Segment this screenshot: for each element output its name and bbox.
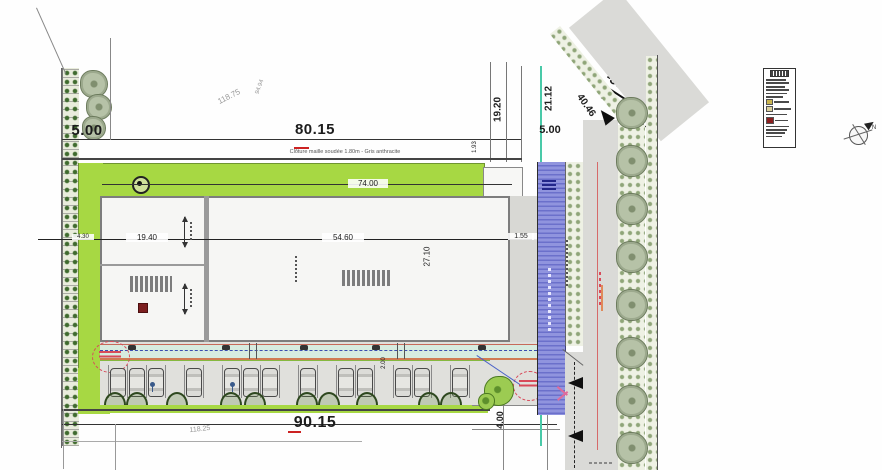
hedge-label-rotated — [566, 240, 568, 286]
legend-row — [766, 126, 793, 128]
legend-row — [766, 114, 793, 116]
tree-icon — [478, 393, 495, 410]
legend-row — [766, 86, 793, 88]
dim-parcel-diag-2: 94.94 — [251, 69, 269, 105]
parking-stall-line — [336, 365, 337, 398]
dim-hall-width: 54.60 — [322, 233, 364, 242]
red-mark — [288, 431, 301, 433]
note-circle-text — [519, 380, 538, 389]
road-orange-tick — [601, 285, 603, 311]
parking-stall-line — [355, 365, 356, 398]
legend-text-bar — [766, 79, 786, 81]
hall-note-rotated — [295, 256, 297, 284]
path-tick — [404, 343, 405, 359]
interior-arrow — [184, 217, 185, 247]
fence-note: Clôture maille soudée 1.80m - Gris anthr… — [240, 149, 450, 155]
legend-row — [766, 129, 793, 131]
legend-box — [763, 68, 796, 148]
legend-text-bar — [774, 101, 789, 103]
parking-stall-line — [127, 365, 128, 398]
tree-icon — [616, 193, 648, 225]
top-dim-line — [62, 139, 522, 140]
legend-row — [766, 96, 793, 98]
utility-line-teal — [540, 66, 542, 163]
dim-parcel-diag-1: 118.75 — [206, 82, 253, 112]
parking-stall-line — [241, 365, 242, 398]
corner-diagonal-line — [36, 8, 66, 74]
parking-stall-line — [469, 365, 470, 398]
dim-ext-line — [110, 38, 111, 140]
dim-left-small: 4.30 — [72, 234, 94, 240]
legend-text-bar — [766, 136, 782, 138]
compass-north-label: N — [870, 125, 878, 131]
parking-stall-line — [393, 365, 394, 398]
dim-building-front: 74.00 — [348, 179, 388, 188]
parking-stall-line — [374, 365, 375, 398]
legend-row — [766, 136, 793, 138]
tree-icon — [616, 241, 648, 273]
dim-gap-1: 1.55 — [508, 233, 534, 240]
legend-text-bar — [766, 132, 785, 134]
dim-path-width: 2.00 — [381, 351, 387, 375]
lamp-stem — [152, 386, 153, 392]
traffic-arrow-icon — [568, 430, 583, 442]
parking-stall-line — [146, 365, 147, 398]
parking-stall-line — [165, 365, 166, 398]
parking-stall-line — [317, 365, 318, 398]
note-circle-text — [99, 351, 121, 360]
legend-row — [766, 93, 793, 95]
building-outline — [100, 196, 510, 342]
bottom-ext-line — [63, 409, 64, 469]
legend-text-bar — [775, 120, 788, 122]
legend-text-bar — [774, 108, 791, 110]
dim-right-2: 21.12 — [544, 79, 555, 119]
legend-title-bar — [770, 70, 789, 77]
dim-right-setback: 5.00 — [532, 124, 568, 136]
interior-arrow — [184, 284, 185, 314]
parking-stall-line — [184, 365, 185, 398]
dim-ext-line — [490, 62, 491, 162]
interior-note-rotated — [190, 289, 192, 309]
hall-note-block — [342, 270, 392, 286]
legend-text-bar — [766, 96, 783, 98]
site-plan-sheet: 5.00 80.15 118.75 94.94 19.20 21.12 5.00… — [0, 0, 882, 470]
legend-text-bar — [766, 114, 787, 116]
room-divider — [100, 264, 206, 266]
tree-icon — [616, 385, 648, 417]
dim-ext-line — [506, 62, 507, 162]
tree-icon — [616, 432, 648, 464]
legend-text-bar — [766, 89, 789, 91]
entrance-line — [547, 408, 548, 470]
car-icon — [186, 368, 202, 397]
dim-right-1: 19.20 — [493, 90, 504, 130]
parking-stall-line — [298, 365, 299, 398]
legend-text-bar — [766, 86, 785, 88]
road-verge-right — [646, 56, 657, 470]
interior-note-rotated — [190, 222, 192, 242]
legend-row — [766, 89, 793, 91]
fire-lane-label-rotated — [548, 268, 551, 332]
footpath-green-line — [100, 360, 490, 361]
footpath-dashed-line — [100, 350, 537, 351]
dim-line-74 — [102, 184, 512, 185]
bottom-ext-line — [115, 424, 116, 470]
legend-text-bar — [766, 129, 787, 131]
dark-red-marker — [138, 303, 148, 313]
parking-stall-line — [222, 365, 223, 398]
legend-row — [766, 132, 793, 134]
entrance-line-h — [472, 429, 560, 430]
parking-stall-line — [203, 365, 204, 398]
car-icon — [262, 368, 278, 397]
legend-text-bar — [766, 93, 787, 95]
car-icon — [338, 368, 354, 397]
road-red-line — [597, 162, 598, 450]
dim-step: 1.93 — [472, 134, 478, 160]
bottom-boundary-line — [62, 409, 490, 411]
path-marker-icon — [300, 345, 308, 350]
legend-text-bar — [766, 82, 789, 84]
path-tick — [249, 343, 250, 359]
dim-top-width: 80.15 — [240, 121, 390, 138]
tree-icon — [616, 337, 648, 369]
traffic-arrow-icon — [568, 377, 583, 389]
dock-step — [483, 167, 523, 198]
legend-swatch — [766, 117, 774, 124]
parking-stall-line — [412, 365, 413, 398]
dim-hall-depth: 27.10 — [423, 238, 432, 276]
parking-stall-line — [279, 365, 280, 398]
bottom-faint-line — [62, 441, 362, 442]
legend-rows — [766, 79, 793, 137]
legend-text-bar — [766, 126, 789, 128]
path-tick — [397, 343, 398, 359]
tree-icon — [616, 289, 648, 321]
dim-top-left-setback: 5.00 — [64, 122, 110, 139]
legend-row — [766, 117, 793, 124]
fire-lane-strip — [537, 162, 566, 415]
site-top-line — [62, 158, 522, 160]
tree-icon — [616, 97, 648, 129]
car-icon — [395, 368, 411, 397]
legend-row — [766, 82, 793, 84]
tree-icon — [616, 145, 648, 177]
room-note-block — [130, 276, 172, 292]
path-marker-icon — [478, 345, 486, 350]
path-marker-icon — [222, 345, 230, 350]
path-marker-icon — [372, 345, 380, 350]
dim-bottom-width: 90.15 — [235, 414, 395, 432]
legend-swatch — [766, 99, 773, 105]
path-marker-icon — [128, 345, 136, 350]
legend-row — [766, 79, 793, 81]
dim-line-mid — [38, 239, 558, 240]
legend-row — [766, 99, 793, 105]
dim-ext-line — [521, 66, 522, 162]
road-right-boundary — [657, 55, 658, 470]
legend-swatch — [766, 106, 773, 112]
fire-lane-top-note — [542, 180, 556, 190]
road-small-label — [589, 462, 613, 464]
footpath-band — [100, 344, 537, 359]
legend-row — [766, 106, 793, 112]
dim-entrance: 4.00 — [495, 402, 505, 438]
building-inner-wall — [204, 196, 209, 342]
path-tick — [256, 343, 257, 359]
dim-room-width: 19.40 — [126, 233, 168, 242]
dock-strip — [510, 196, 537, 342]
dim-parcel-bottom: 118.25 — [175, 423, 225, 435]
